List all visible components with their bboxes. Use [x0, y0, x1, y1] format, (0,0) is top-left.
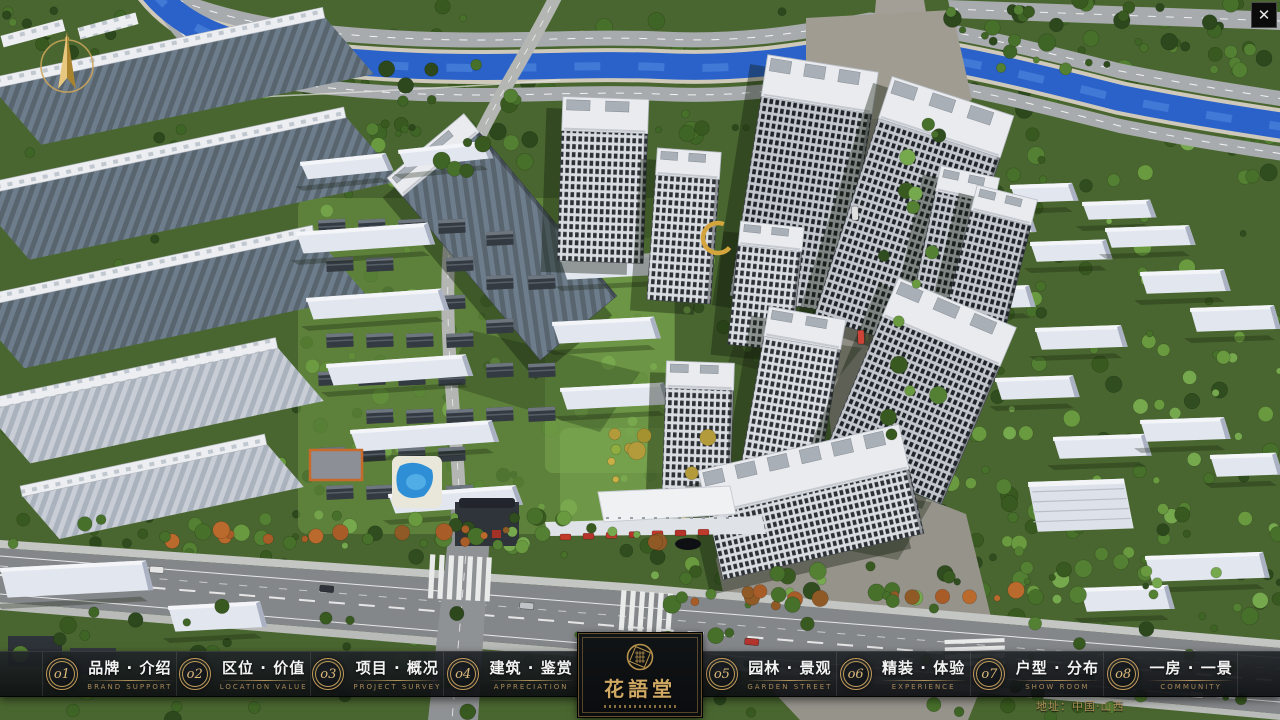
nav-item-1-number-badge: o1 [46, 658, 78, 690]
nav-item-7-label-cn: 户型 · 分布 [1016, 657, 1099, 678]
nav-item-1-number: o1 [49, 661, 75, 687]
navbar-right-cap [1237, 652, 1280, 696]
nav-item-3-number: o3 [315, 661, 341, 687]
nav-item-8[interactable]: o8 一房 · 一景 COMMUNITY [1104, 652, 1237, 696]
navbar-left-cap [0, 652, 43, 696]
nav-item-6[interactable]: o6 精装 · 体验 EXPERIENCE [837, 652, 971, 696]
brand-seal-icon [626, 643, 654, 671]
nav-item-3[interactable]: o3 项目 · 概况 PROJECT SURVEY [311, 652, 445, 696]
nav-item-4-text: 建筑 · 鉴赏 APPRECIATION [488, 657, 574, 691]
nav-item-4-label-en: APPRECIATION [494, 683, 569, 691]
nav-item-3-text: 项目 · 概况 PROJECT SURVEY [353, 657, 441, 691]
nav-item-3-label-en: PROJECT SURVEY [353, 683, 441, 691]
nav-item-4-number-badge: o4 [447, 658, 479, 690]
nav-item-8-rule [1148, 680, 1234, 681]
nav-item-7-rule [1014, 680, 1100, 681]
nav-item-1-rule [87, 680, 173, 681]
nav-item-7-number-badge: o7 [973, 658, 1005, 690]
nav-group-right: o5 园林 · 景观 GARDEN STREET o6 精装 · 体验 EXPE… [703, 652, 1237, 696]
nav-item-8-label-en: COMMUNITY [1160, 683, 1221, 691]
nav-item-7-label-en: SHOW ROOM [1025, 683, 1089, 691]
nav-item-5[interactable]: o5 园林 · 景观 GARDEN STREET [703, 652, 837, 696]
nav-item-2-number-badge: o2 [179, 658, 211, 690]
nav-item-6-label-en: EXPERIENCE [892, 683, 956, 691]
nav-item-3-rule [353, 680, 441, 681]
nav-item-1-text: 品牌 · 介绍 BRAND SUPPORT [87, 657, 173, 691]
nav-item-5-text: 园林 · 景观 GARDEN STREET [747, 657, 833, 691]
nav-item-5-label-cn: 园林 · 景观 [748, 657, 831, 678]
nav-item-3-label-cn: 项目 · 概况 [356, 657, 439, 678]
nav-item-3-number-badge: o3 [312, 658, 344, 690]
nav-item-4[interactable]: o4 建筑 · 鉴赏 APPRECIATION [444, 652, 577, 696]
nav-item-1[interactable]: o1 品牌 · 介绍 BRAND SUPPORT [43, 652, 177, 696]
brand-plaque[interactable]: 花語堂 [578, 633, 702, 717]
nav-item-6-text: 精装 · 体验 EXPERIENCE [881, 657, 967, 691]
nav-item-6-number: o6 [843, 661, 869, 687]
nav-item-2-rule [220, 680, 308, 681]
nav-item-2-label-cn: 区位 · 价值 [222, 657, 305, 678]
nav-item-1-label-en: BRAND SUPPORT [87, 683, 172, 691]
nav-item-4-number: o4 [450, 661, 476, 687]
nav-item-2[interactable]: o2 区位 · 价值 LOCATION VALUE [177, 652, 311, 696]
close-button[interactable]: ✕ [1251, 2, 1277, 28]
nav-item-6-rule [881, 680, 967, 681]
nav-item-2-text: 区位 · 价值 LOCATION VALUE [220, 657, 308, 691]
nav-item-6-label-cn: 精装 · 体验 [882, 657, 965, 678]
nav-item-8-text: 一房 · 一景 COMMUNITY [1148, 657, 1234, 691]
nav-item-4-label-cn: 建筑 · 鉴赏 [490, 657, 573, 678]
masterplan-render [0, 0, 1280, 720]
nav-item-7-text: 户型 · 分布 SHOW ROOM [1014, 657, 1100, 691]
brand-subtitle-rule [604, 705, 676, 708]
nav-item-7[interactable]: o7 户型 · 分布 SHOW ROOM [971, 652, 1105, 696]
nav-item-1-label-cn: 品牌 · 介绍 [88, 657, 171, 678]
nav-item-2-number: o2 [182, 661, 208, 687]
brand-title: 花語堂 [604, 673, 676, 702]
nav-item-5-number: o5 [709, 661, 735, 687]
nav-item-8-number: o8 [1110, 661, 1136, 687]
nav-group-left: o1 品牌 · 介绍 BRAND SUPPORT o2 区位 · 价值 LOCA… [43, 652, 577, 696]
nav-item-4-rule [488, 680, 574, 681]
nav-item-8-number-badge: o8 [1107, 658, 1139, 690]
nav-item-5-number-badge: o5 [706, 658, 738, 690]
nav-item-2-label-en: LOCATION VALUE [220, 683, 308, 691]
project-address: 地址：中国·山西 [1036, 698, 1125, 714]
nav-item-5-rule [747, 680, 833, 681]
nav-item-8-label-cn: 一房 · 一景 [1150, 657, 1233, 678]
nav-item-5-label-en: GARDEN STREET [747, 683, 832, 691]
nav-item-6-number-badge: o6 [840, 658, 872, 690]
nav-item-7-number: o7 [976, 661, 1002, 687]
